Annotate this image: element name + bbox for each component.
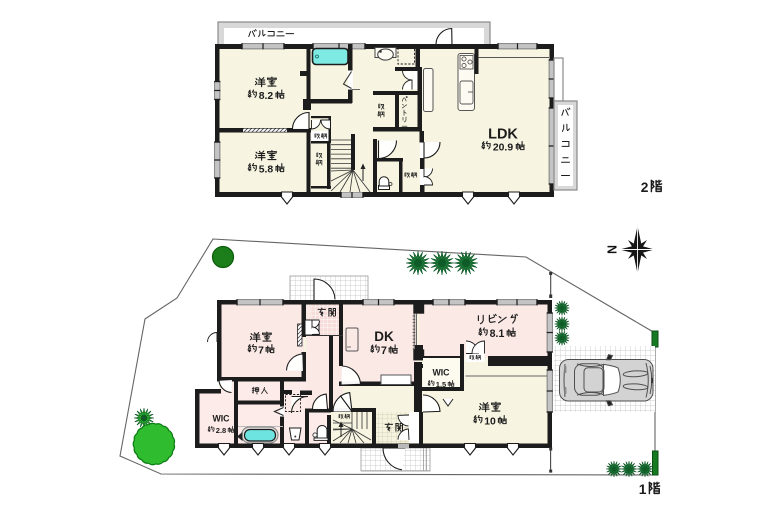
svg-text:N: N	[606, 245, 620, 254]
svg-text:10: 10	[484, 416, 496, 427]
svg-text:WIC: WIC	[432, 368, 450, 378]
svg-text:2: 2	[641, 180, 649, 195]
svg-text:1: 1	[639, 482, 647, 497]
svg-text:7: 7	[258, 345, 264, 356]
svg-text:7: 7	[381, 345, 387, 357]
svg-text:20.9: 20.9	[493, 142, 513, 153]
svg-text:5.8: 5.8	[259, 164, 274, 175]
svg-text:WIC: WIC	[212, 414, 230, 424]
svg-text:8.2: 8.2	[259, 91, 274, 102]
svg-text:DK: DK	[374, 329, 394, 344]
svg-text:LDK: LDK	[488, 127, 518, 143]
svg-text:1.5: 1.5	[436, 380, 446, 389]
svg-text:2.8: 2.8	[216, 426, 226, 435]
svg-text:8.1: 8.1	[490, 328, 505, 340]
